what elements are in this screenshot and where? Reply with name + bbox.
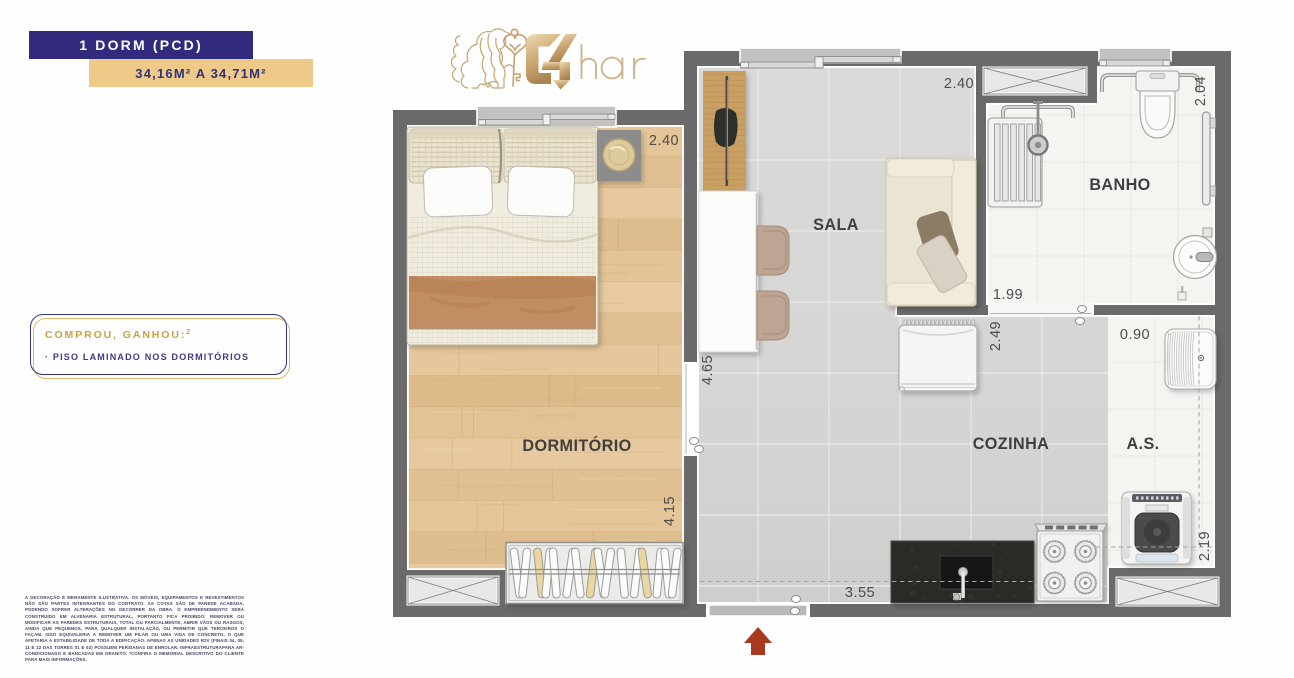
svg-text:SALA: SALA bbox=[813, 216, 859, 234]
svg-text:3.55: 3.55 bbox=[845, 585, 875, 601]
svg-text:0.90: 0.90 bbox=[1120, 327, 1150, 343]
svg-text:4.65: 4.65 bbox=[700, 355, 716, 385]
svg-text:4.15: 4.15 bbox=[662, 496, 678, 526]
svg-text:DORMITÓRIO: DORMITÓRIO bbox=[522, 436, 631, 455]
svg-text:1.99: 1.99 bbox=[993, 287, 1023, 303]
svg-text:2.40: 2.40 bbox=[944, 76, 974, 92]
svg-text:2.49: 2.49 bbox=[988, 321, 1004, 351]
svg-text:2.19: 2.19 bbox=[1197, 531, 1213, 561]
svg-text:2.04: 2.04 bbox=[1193, 76, 1209, 106]
svg-text:A.S.: A.S. bbox=[1126, 435, 1159, 453]
svg-text:COZINHA: COZINHA bbox=[973, 435, 1050, 453]
svg-text:BANHO: BANHO bbox=[1089, 176, 1150, 194]
svg-text:2.40: 2.40 bbox=[649, 133, 679, 149]
